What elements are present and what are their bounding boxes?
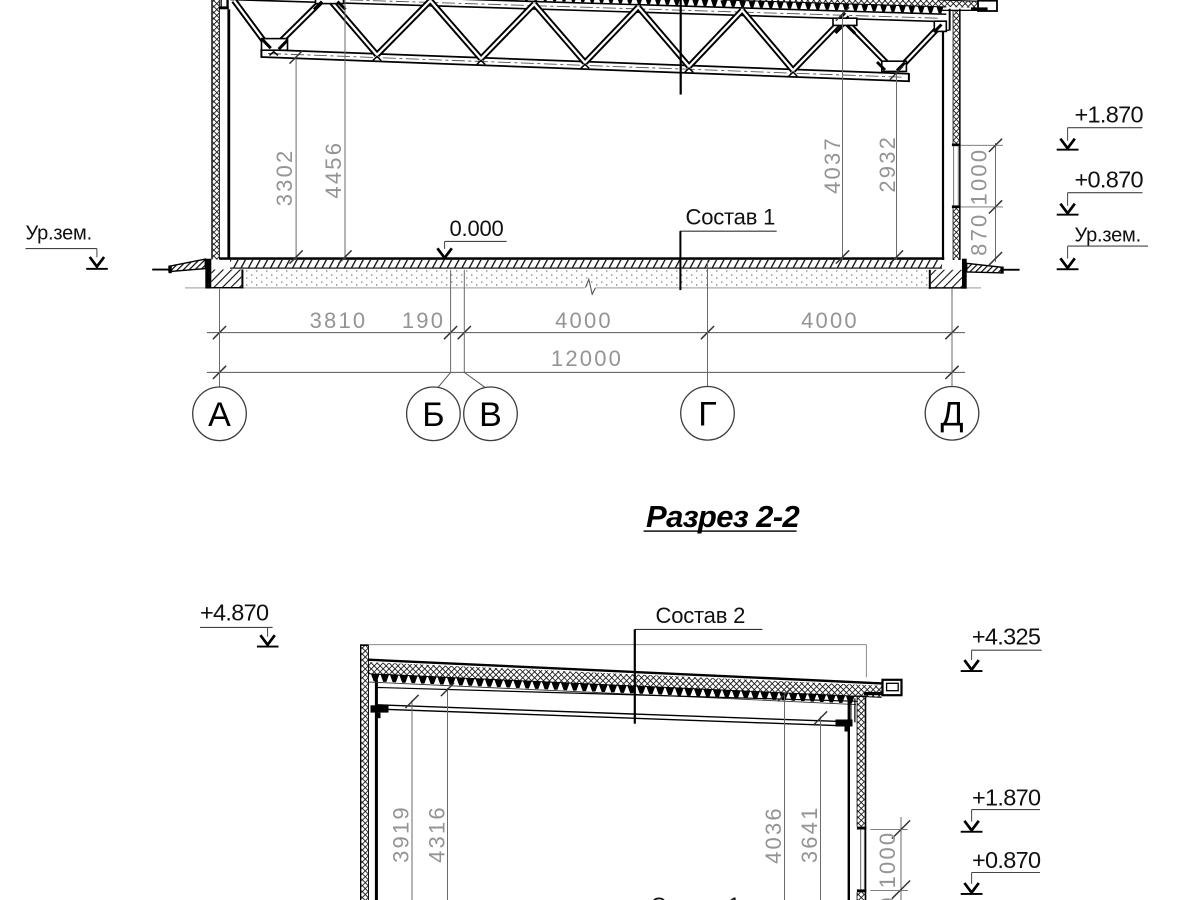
svg-text:+1.870: +1.870 xyxy=(972,785,1041,811)
svg-text:4000: 4000 xyxy=(801,308,859,333)
svg-text:Разрез 2-2: Разрез 2-2 xyxy=(646,499,800,534)
svg-text:Ур.зем.: Ур.зем. xyxy=(1075,225,1141,247)
svg-text:Б: Б xyxy=(422,396,444,434)
svg-text:+4.325: +4.325 xyxy=(972,623,1041,649)
svg-text:870: 870 xyxy=(875,895,900,900)
svg-text:3919: 3919 xyxy=(389,805,414,863)
svg-text:В: В xyxy=(479,396,502,434)
svg-text:0.000: 0.000 xyxy=(450,216,504,241)
svg-text:4036: 4036 xyxy=(761,806,786,864)
svg-text:Состав 1: Состав 1 xyxy=(686,205,776,230)
svg-text:3302: 3302 xyxy=(272,149,297,207)
svg-text:870: 870 xyxy=(967,213,992,256)
svg-text:Состав 2: Состав 2 xyxy=(656,603,746,628)
svg-text:1000: 1000 xyxy=(967,148,992,206)
svg-text:3810: 3810 xyxy=(310,308,368,333)
svg-text:4456: 4456 xyxy=(321,141,346,199)
svg-text:+0.870: +0.870 xyxy=(1075,167,1144,193)
svg-text:4000: 4000 xyxy=(555,308,613,333)
svg-text:2932: 2932 xyxy=(875,135,900,193)
svg-text:Г: Г xyxy=(698,396,716,434)
svg-text:+0.870: +0.870 xyxy=(972,847,1041,873)
svg-text:Состав 1: Состав 1 xyxy=(651,893,741,900)
svg-text:+4.870: +4.870 xyxy=(200,600,269,626)
svg-text:3641: 3641 xyxy=(797,805,822,863)
svg-text:12000: 12000 xyxy=(551,346,623,371)
svg-text:4316: 4316 xyxy=(425,805,450,863)
svg-text:1000: 1000 xyxy=(875,831,900,889)
svg-text:Ур.зем.: Ур.зем. xyxy=(26,223,92,245)
svg-text:4037: 4037 xyxy=(820,136,845,194)
svg-text:А: А xyxy=(208,396,231,434)
svg-text:+1.870: +1.870 xyxy=(1075,102,1144,128)
svg-text:190: 190 xyxy=(402,308,445,333)
svg-text:Д: Д xyxy=(940,396,963,434)
